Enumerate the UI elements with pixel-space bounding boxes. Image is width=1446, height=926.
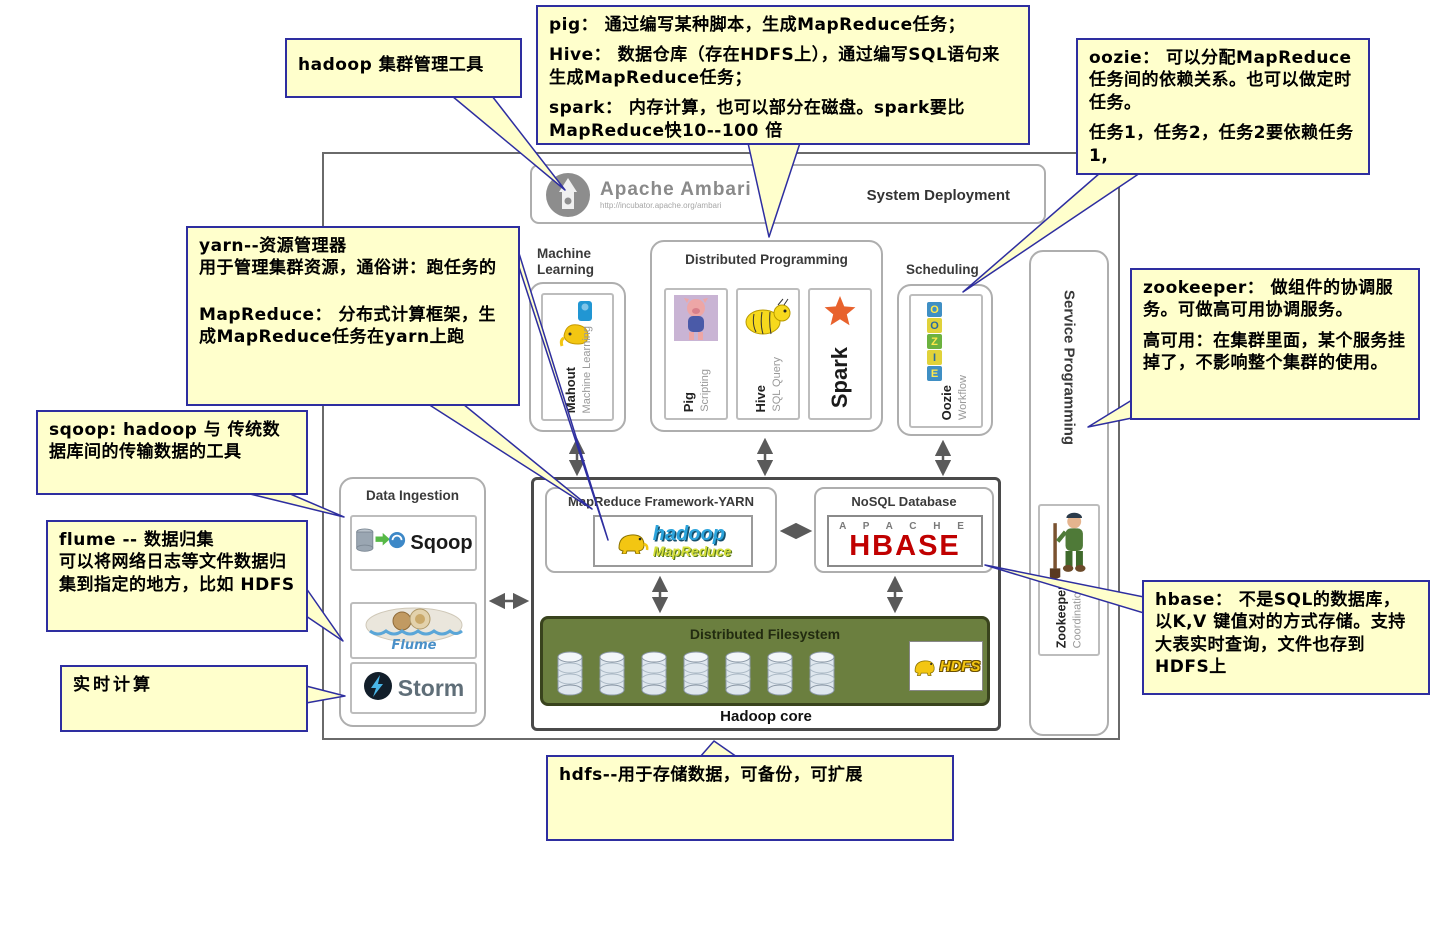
- callout-hdfs: hdfs--用于存储数据，可备份，可扩展: [546, 755, 954, 841]
- oozie-sublabel: Workflow: [957, 375, 969, 420]
- callout-oozie-line1: oozie： 可以分配MapReduce任务间的依赖关系。也可以做定时任务。: [1089, 47, 1357, 114]
- zookeeper-item: Zookeeper Coordination: [1038, 504, 1100, 656]
- callout-flume: flume -- 数据归集 可以将网络日志等文件数据归集到指定的地方，比如 HD…: [46, 520, 308, 632]
- callout-hbase: hbase： 不是SQL的数据库，以K,V 键值对的方式存储。支持大表实时查询，…: [1142, 580, 1430, 695]
- hdfs-logo: HDFS: [909, 641, 983, 691]
- scheduling-label: Scheduling: [906, 262, 979, 278]
- hive-item: Hive SQL Query: [736, 288, 800, 420]
- callout-sqoop: sqoop: hadoop 与 传统数据库间的传输数据的工具: [36, 410, 308, 495]
- sqoop-icon: [354, 524, 406, 562]
- hbase-text: HBASE: [849, 532, 961, 561]
- callout-flume-line2: 可以将网络日志等文件数据归集到指定的地方，比如 HDFS: [59, 551, 295, 596]
- scheduling-box: O O Z I E Oozie Workflow: [897, 284, 993, 436]
- cylinder-icon: [809, 651, 835, 697]
- callout-yarn: yarn--资源管理器 用于管理集群资源，通俗讲：跑任务的 MapReduce：…: [186, 226, 520, 406]
- flume-item: Flume: [350, 602, 477, 659]
- callout-zookeeper-line1: zookeeper： 做组件的协调服务。可做高可用协调服务。: [1143, 277, 1407, 322]
- callout-pig-line: pig： 通过编写某种脚本，生成MapReduce任务；: [549, 14, 1017, 36]
- oozie-tile: Z: [927, 334, 942, 349]
- callout-hbase-text: hbase： 不是SQL的数据库，以K,V 键值对的方式存储。支持大表实时查询，…: [1155, 589, 1417, 679]
- storm-icon: [363, 671, 393, 705]
- machine-learning-box: Mahout Machine Learning: [529, 282, 626, 432]
- sqoop-label: Sqoop: [410, 532, 472, 555]
- cylinder-icon: [641, 651, 667, 697]
- hadoop-mapreduce-logo: hadoop MapReduce: [593, 515, 753, 567]
- hadoop-ecosystem-diagram: Apache Ambari http://incubator.apache.or…: [0, 0, 1446, 926]
- callout-pig-hive-spark: pig： 通过编写某种脚本，生成MapReduce任务； Hive： 数据仓库（…: [536, 5, 1030, 145]
- storm-item: Storm: [350, 662, 477, 714]
- system-deployment-label: System Deployment: [867, 187, 1010, 204]
- nosql-label: NoSQL Database: [816, 495, 992, 510]
- mapreduce-box: MapReduce Framework-YARN hadoop MapReduc…: [545, 487, 777, 573]
- oozie-logo-icon: O O Z I E: [927, 302, 942, 382]
- hadoop-core-label: Hadoop core: [534, 708, 998, 725]
- machine-learning-label: Machine Learning: [537, 246, 609, 277]
- zookeeper-label: Zookeeper: [1055, 585, 1069, 648]
- hbase-logo: A P A C H E HBASE: [827, 515, 983, 567]
- hadoop-logo-text: hadoop: [653, 524, 732, 544]
- hdfs-logo-text: HDFS: [940, 659, 981, 674]
- callout-hdfs-text: hdfs--用于存储数据，可备份，可扩展: [559, 764, 941, 786]
- pig-icon: [674, 295, 718, 345]
- hive-label: Hive: [753, 385, 768, 412]
- pig-item: Pig Scripting: [664, 288, 728, 420]
- callout-spark-line: spark： 内存计算，也可以部分在磁盘。spark要比MapReduce快10…: [549, 97, 1017, 142]
- hive-sublabel: SQL Query: [771, 357, 783, 412]
- callout-oozie-line2: 任务1，任务2，任务2要依赖任务1,: [1089, 122, 1357, 167]
- storm-label: Storm: [398, 675, 464, 702]
- callout-realtime: 实时计算: [60, 665, 308, 732]
- zookeeper-icon: [1044, 511, 1094, 595]
- hadoop-core-box: MapReduce Framework-YARN hadoop MapReduc…: [531, 477, 1001, 731]
- service-programming-label: Service Programming: [1061, 290, 1078, 445]
- oozie-tile: I: [927, 350, 942, 365]
- spark-label: Spark: [827, 347, 853, 408]
- cylinder-icon: [557, 651, 583, 697]
- data-ingestion-box: Data Ingestion Sqoop: [339, 477, 486, 727]
- zookeeper-sublabel: Coordination: [1072, 586, 1084, 648]
- oozie-tile: O: [927, 318, 942, 333]
- data-ingestion-label: Data Ingestion: [341, 488, 484, 504]
- pig-sublabel: Scripting: [699, 369, 711, 412]
- callout-yarn-line3: MapReduce： 分布式计算框架，生成MapReduce任务在yarn上跑: [199, 304, 507, 349]
- callout-zookeeper-line2: 高可用：在集群里面，某个服务挂掉了，不影响整个集群的使用。: [1143, 330, 1407, 375]
- callout-ambari-text: hadoop 集群管理工具: [298, 54, 509, 76]
- hive-icon: [742, 295, 794, 343]
- callout-yarn-line2: 用于管理集群资源，通俗讲：跑任务的: [199, 257, 507, 279]
- ambari-url: http://incubator.apache.org/ambari: [600, 201, 752, 210]
- hdfs-elephant-icon: [912, 652, 938, 680]
- ambari-logo-icon: [545, 172, 591, 222]
- flume-icon: Flume: [362, 605, 466, 657]
- spark-star-icon: [823, 295, 857, 331]
- callout-sqoop-text: sqoop: hadoop 与 传统数据库间的传输数据的工具: [49, 419, 295, 464]
- callout-oozie: oozie： 可以分配MapReduce任务间的依赖关系。也可以做定时任务。 任…: [1076, 38, 1370, 175]
- ambari-title: Apache Ambari: [600, 179, 752, 201]
- oozie-item: O O Z I E Oozie Workflow: [909, 294, 983, 428]
- mapreduce-logo-text: MapReduce: [653, 544, 732, 558]
- mahout-item: Mahout Machine Learning: [541, 293, 614, 421]
- distributed-programming-label: Distributed Programming: [652, 252, 881, 268]
- hadoop-elephant-icon: [615, 524, 649, 558]
- sqoop-item: Sqoop: [350, 515, 477, 571]
- oozie-label: Oozie: [939, 385, 954, 420]
- distributed-filesystem-label: Distributed Filesystem: [543, 626, 987, 642]
- distributed-programming-box: Distributed Programming Pig Scripting: [650, 240, 883, 432]
- pig-label: Pig: [681, 392, 696, 412]
- flume-label: Flume: [391, 638, 436, 653]
- oozie-tile: O: [927, 302, 942, 317]
- cylinder-icon: [683, 651, 709, 697]
- datanode-cylinders: [557, 651, 835, 697]
- callout-realtime-text: 实时计算: [73, 674, 295, 696]
- distributed-filesystem-box: Distributed Filesystem HDFS: [540, 616, 990, 706]
- mahout-sublabel: Machine Learning: [581, 326, 593, 413]
- nosql-box: NoSQL Database A P A C H E HBASE: [814, 487, 994, 573]
- cylinder-icon: [767, 651, 793, 697]
- mapreduce-label: MapReduce Framework-YARN: [547, 495, 775, 510]
- cylinder-icon: [599, 651, 625, 697]
- service-programming-box: Service Programming Zookeeper: [1029, 250, 1109, 736]
- callout-ambari-tool: hadoop 集群管理工具: [285, 38, 522, 98]
- ambari-bar: Apache Ambari http://incubator.apache.or…: [530, 164, 1046, 224]
- callout-flume-line1: flume -- 数据归集: [59, 529, 295, 551]
- callout-hive-line: Hive： 数据仓库（存在HDFS上），通过编写SQL语句来生成MapReduc…: [549, 44, 1017, 89]
- cylinder-icon: [725, 651, 751, 697]
- callout-yarn-line1: yarn--资源管理器: [199, 235, 507, 257]
- mahout-label: Mahout: [563, 367, 578, 413]
- spark-item: Spark: [808, 288, 872, 420]
- callout-zookeeper: zookeeper： 做组件的协调服务。可做高可用协调服务。 高可用：在集群里面…: [1130, 268, 1420, 420]
